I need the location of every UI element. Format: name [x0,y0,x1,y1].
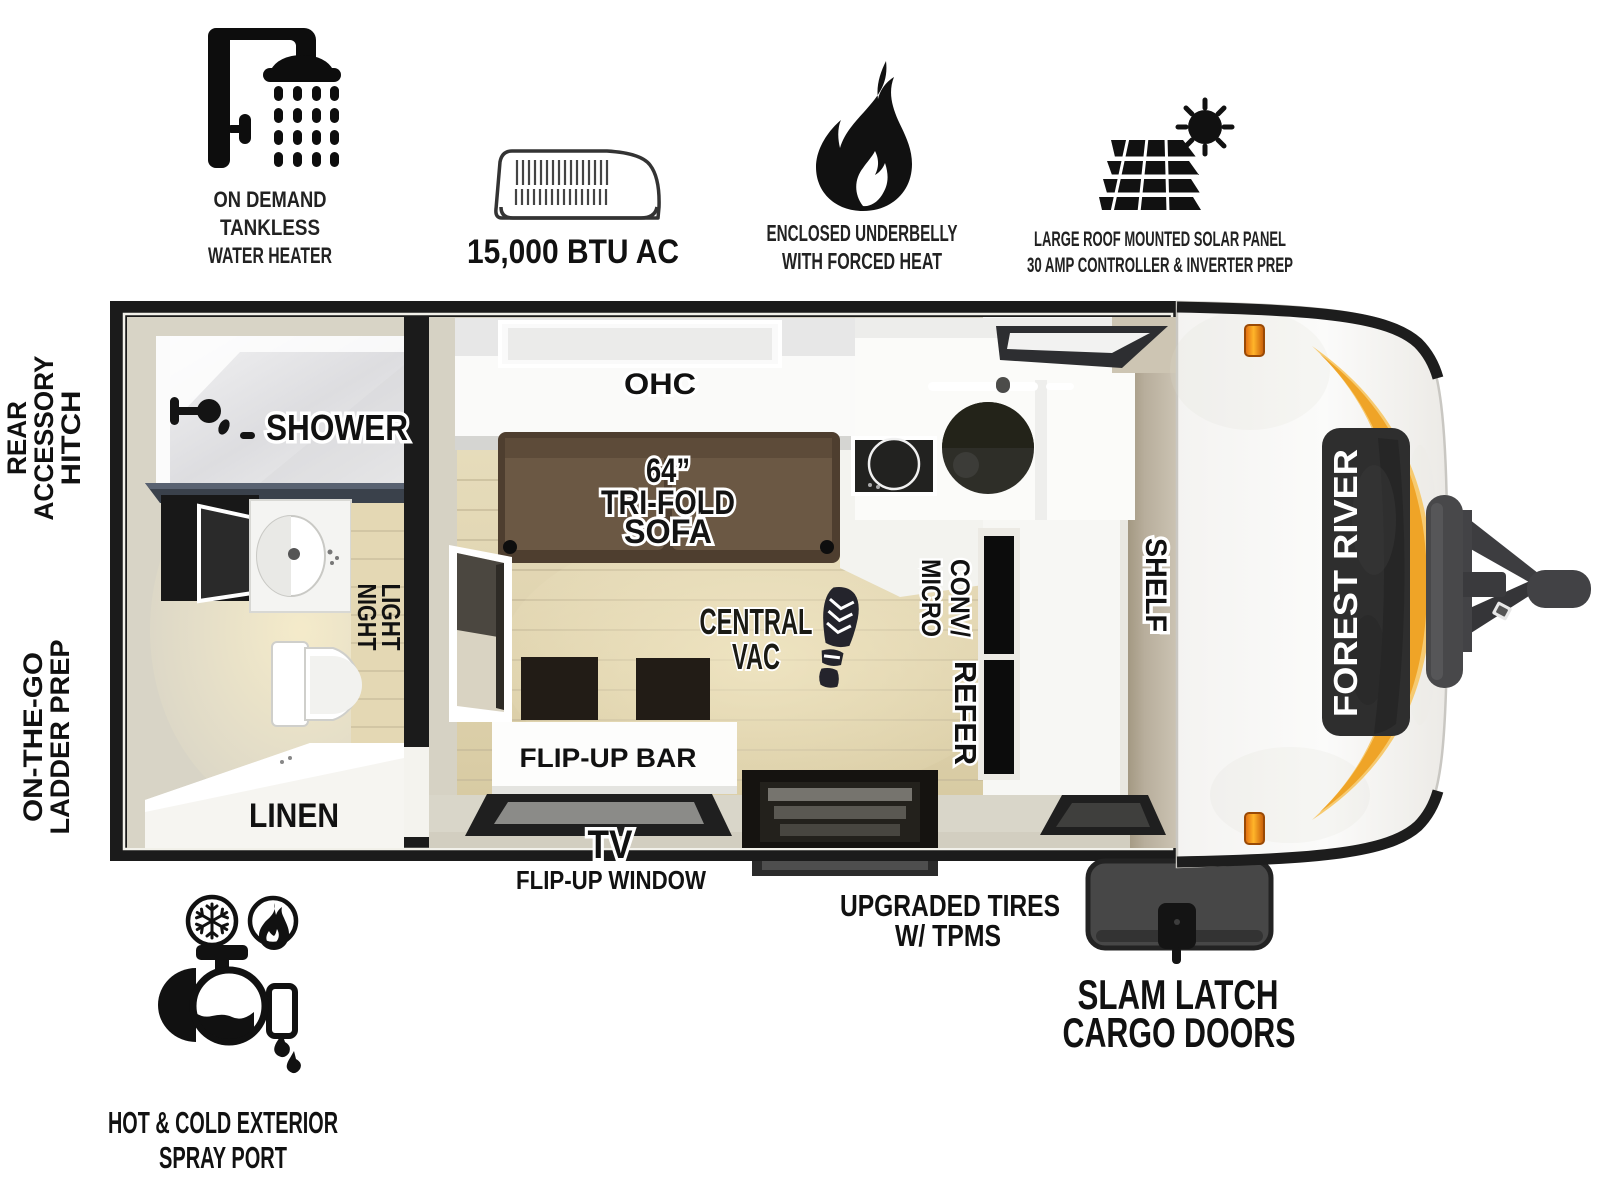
svg-text:VAC: VAC [732,636,780,677]
svg-text:SOFA: SOFA [624,513,712,551]
svg-text:FOREST RIVER: FOREST RIVER [1327,449,1364,717]
svg-text:ENCLOSED UNDERBELLY: ENCLOSED UNDERBELLY [767,220,958,246]
svg-text:MICRO: MICRO [916,559,946,637]
svg-text:FLIP-UP WINDOW: FLIP-UP WINDOW [516,865,706,895]
svg-text:REFER: REFER [948,661,983,765]
svg-text:15,000 BTU AC: 15,000 BTU AC [467,233,679,271]
svg-text:WITH FORCED HEAT: WITH FORCED HEAT [782,248,942,274]
svg-text:TANKLESS: TANKLESS [220,215,320,240]
svg-text:LINEN: LINEN [249,797,339,835]
svg-text:W/ TPMS: W/ TPMS [895,918,1001,953]
svg-text:FLIP-UP BAR: FLIP-UP BAR [520,743,697,773]
svg-text:ON-THE-GOLADDER PREP: ON-THE-GOLADDER PREP [18,640,75,835]
svg-text:30 AMP CONTROLLER & INVERTER P: 30 AMP CONTROLLER & INVERTER PREP [1027,254,1293,277]
svg-text:LIGHT: LIGHT [376,584,406,651]
svg-text:LARGE ROOF MOUNTED SOLAR PANEL: LARGE ROOF MOUNTED SOLAR PANEL [1034,228,1286,251]
svg-text:CARGO DOORS: CARGO DOORS [1063,1009,1296,1056]
svg-text:CONV/: CONV/ [945,559,975,637]
svg-text:ON DEMAND: ON DEMAND [214,187,327,212]
svg-text:SHOWER: SHOWER [266,407,408,448]
svg-text:WATER HEATER: WATER HEATER [208,243,332,268]
svg-text:SHELF: SHELF [1139,538,1172,632]
svg-text:OHC: OHC [624,368,696,401]
svg-text:HOT & COLD EXTERIOR: HOT & COLD EXTERIOR [108,1105,338,1140]
svg-text:TV: TV [588,823,633,867]
svg-text:SPRAY PORT: SPRAY PORT [159,1140,287,1175]
